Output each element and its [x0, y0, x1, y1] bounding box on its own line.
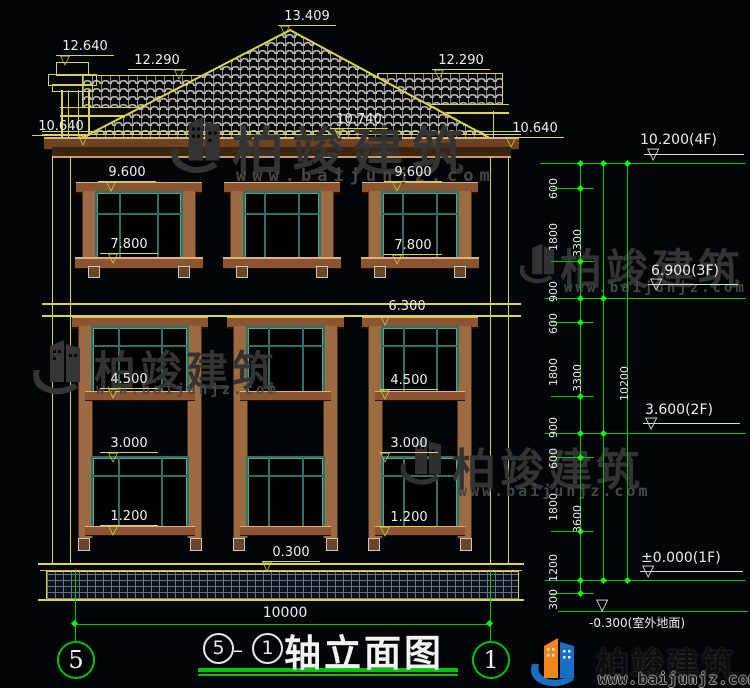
- footer-logo-icon: [528, 634, 586, 688]
- leader-triangle-icon: ▽: [434, 68, 444, 81]
- chain-tick: [600, 577, 607, 584]
- plinth-bottom-line: [38, 599, 524, 601]
- third-floor-window: [82, 182, 196, 278]
- dimension-label: 12.640▽: [56, 39, 114, 56]
- pilaster-foot: [190, 538, 202, 551]
- dimension-tick: [486, 620, 493, 627]
- window-sill: [85, 526, 195, 536]
- chain-tick: [600, 160, 607, 167]
- wall-edge-right: [508, 156, 509, 563]
- level-line: [545, 298, 746, 299]
- leader-triangle-icon: ▽: [392, 180, 402, 193]
- level-tick-line: [551, 396, 594, 397]
- title-axis-end: 1: [252, 633, 283, 664]
- first-floor-window: [246, 456, 325, 530]
- dimension-label: 10.740▽: [330, 112, 388, 129]
- elevation-bar: [643, 423, 740, 424]
- dimension-label: 12.290▽: [128, 53, 186, 70]
- elevation-bar: [640, 571, 743, 572]
- dimension-label: 1.200▽: [380, 510, 438, 527]
- chain-tick: [577, 319, 584, 326]
- chain-dim: 1800: [547, 358, 560, 386]
- elevation-drawing-canvas: 柏竣建筑 www.baijunjz.com 柏竣建筑 www.baijunjz.…: [0, 0, 750, 688]
- dimension-label: 6.300▽: [378, 299, 436, 316]
- level-line: [545, 433, 746, 434]
- elevation-triangle-icon: ▽: [642, 563, 654, 579]
- window-glazing: [243, 191, 321, 260]
- chain-tick: [624, 577, 631, 584]
- axis-leader-right: [490, 571, 491, 641]
- leader-triangle-icon: ▽: [60, 54, 70, 67]
- leader-triangle-icon: ▽: [380, 314, 390, 327]
- chain-dim: 3300: [571, 229, 584, 257]
- chain-tick: [577, 393, 584, 400]
- window-pilaster: [319, 191, 334, 257]
- chain-dim: 3300: [571, 364, 584, 392]
- floor-band-line: [42, 303, 521, 305]
- third-floor-window: [230, 182, 334, 278]
- sill-foot: [374, 266, 386, 278]
- leader-triangle-icon: ▽: [380, 525, 390, 538]
- chain-dim: 600: [547, 313, 560, 334]
- leader-triangle-icon: ▽: [108, 387, 118, 400]
- dimension-label: 1.200▽: [100, 509, 158, 526]
- plinth-top-line: [38, 563, 524, 565]
- pilaster-foot: [78, 538, 90, 551]
- third-floor-window: [368, 182, 472, 278]
- elevation-triangle-icon: ▽: [645, 415, 657, 431]
- axis-leader-left: [75, 571, 76, 641]
- dimension-label: 10.640▽: [32, 119, 90, 136]
- dimension-label: 9.600▽: [98, 165, 156, 182]
- sill-foot: [88, 266, 100, 278]
- sill-foot: [236, 266, 248, 278]
- footer-url: www.baijunjz.com: [598, 670, 750, 688]
- dimension-label: 12.290▽: [432, 53, 490, 70]
- chain-dim: 600: [547, 448, 560, 469]
- chain-dim-total: 10200: [618, 366, 631, 401]
- dimension-label: 13.409▽: [278, 9, 336, 26]
- chain-dim: 900: [547, 281, 560, 302]
- watermark-logo-icon: [166, 112, 228, 180]
- dimension-tick: [71, 620, 78, 627]
- leader-triangle-icon: ▽: [506, 136, 516, 149]
- leader-triangle-icon: ▽: [380, 451, 390, 464]
- dimension-label: 4.500▽: [100, 372, 158, 389]
- axis-bubble-1: 1: [472, 641, 510, 679]
- chain-dim: 1800: [547, 493, 560, 521]
- chain-tick: [624, 160, 631, 167]
- ground-level-line: [558, 611, 748, 612]
- leader-triangle-icon: ▽: [334, 127, 344, 140]
- leader-triangle-icon: ▽: [174, 68, 184, 81]
- sill-foot: [178, 266, 190, 278]
- chain-tick: [577, 577, 584, 584]
- level-tick-line: [551, 261, 594, 262]
- leader-triangle-icon: ▽: [106, 180, 116, 193]
- chain-dim: 1200: [547, 554, 560, 582]
- level-line: [540, 163, 746, 164]
- dimension-label: 10.640▽: [506, 121, 564, 138]
- title-separator: –: [233, 638, 243, 662]
- chain-dim: 1800: [547, 223, 560, 251]
- dimension-label: 3.000▽: [380, 436, 438, 453]
- pilaster-foot: [460, 538, 472, 551]
- sill-foot: [316, 266, 328, 278]
- overall-width-dim: 10000: [255, 605, 315, 621]
- wall-edge-right-inner: [490, 156, 491, 563]
- dimension-label: 4.500▽: [380, 373, 438, 390]
- elevation-triangle-icon: ▽: [596, 597, 608, 613]
- window-sill: [240, 526, 331, 536]
- leader-triangle-icon: ▽: [108, 451, 118, 464]
- sill-foot: [454, 266, 466, 278]
- window-pilaster: [457, 326, 472, 538]
- chimney-cap: [52, 84, 93, 92]
- pilaster-foot: [368, 538, 380, 551]
- window-pilaster: [457, 191, 472, 257]
- chain-tick: [577, 185, 584, 192]
- leader-triangle-icon: ▽: [108, 524, 118, 537]
- elevation-triangle-icon: ▽: [647, 146, 659, 162]
- window-pilaster: [181, 191, 196, 257]
- title-axis-start: 5: [203, 633, 234, 664]
- watermark-logo-icon: [28, 336, 88, 400]
- leader-triangle-icon: ▽: [78, 134, 88, 147]
- dimension-label: 7.800▽: [384, 238, 442, 255]
- elevation-marker-ground: -0.300(室外地面): [589, 614, 685, 631]
- chain-dim: 600: [547, 178, 560, 199]
- dimension-label: 0.300▽: [262, 545, 320, 562]
- leader-triangle-icon: ▽: [280, 24, 290, 37]
- chain-dim: 300: [547, 589, 560, 610]
- dimension-label: 3.000▽: [100, 436, 158, 453]
- drawing-title: 轴立面图: [284, 623, 444, 677]
- chain-line-2: [603, 163, 604, 580]
- dimension-label: 9.600▽: [384, 165, 442, 182]
- pilaster-foot: [326, 538, 338, 551]
- window-pilaster: [323, 326, 338, 538]
- chain-tick: [577, 590, 584, 597]
- leader-triangle-icon: ▽: [380, 388, 390, 401]
- elevation-triangle-icon: ▽: [650, 276, 662, 292]
- leader-triangle-icon: ▽: [392, 253, 402, 266]
- leader-triangle-icon: ▽: [108, 252, 118, 265]
- dimension-label: 7.800▽: [100, 237, 158, 254]
- plinth-brick-band: [46, 571, 519, 600]
- level-line: [545, 580, 746, 581]
- watermark-url: www.baijunjz.com: [236, 166, 496, 186]
- leader-triangle-icon: ▽: [262, 560, 272, 573]
- chain-tick: [577, 160, 584, 167]
- pilaster-foot: [233, 538, 245, 551]
- axis-bubble-5: 5: [57, 641, 95, 679]
- chain-dim: 900: [547, 417, 560, 438]
- chain-dim: 3600: [571, 505, 584, 533]
